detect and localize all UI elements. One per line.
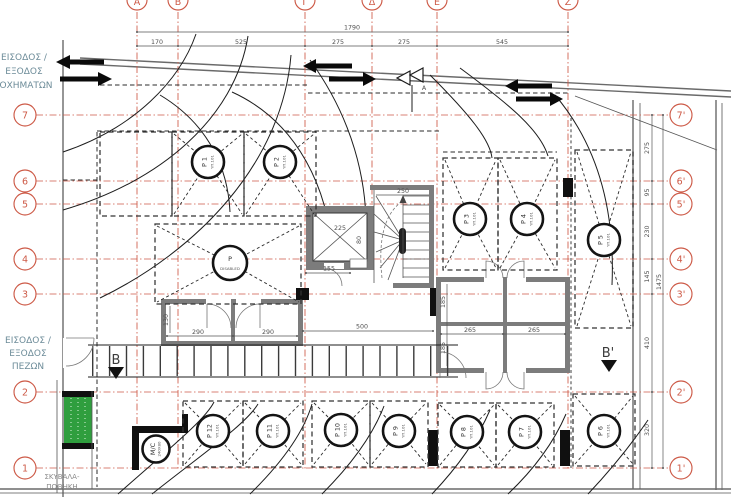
section-b-prime-label: B'	[602, 346, 615, 361]
spot-sub: ΥΠ.101	[401, 423, 406, 437]
grid-label: 6	[22, 177, 28, 188]
staircase: 250	[370, 185, 434, 288]
section-b-label: B	[112, 353, 121, 368]
grid-label: 3'	[677, 290, 686, 301]
spot-id: P 3	[463, 214, 471, 224]
storage-block-right: 265 265 185 185	[436, 261, 570, 389]
dim-seg: 410	[644, 337, 651, 349]
dim-seg: 275	[332, 39, 344, 46]
dim-total: 1475	[656, 274, 663, 290]
spot-sub: ΥΠ.101	[282, 154, 287, 168]
spot-sub: ΥΠ.101	[275, 423, 280, 437]
parking-spot-empty	[100, 132, 172, 216]
spot-id: P 6	[597, 426, 605, 436]
direction-arrows	[56, 55, 563, 106]
dim-seg: 230	[644, 225, 651, 237]
parking-spot: P 10ΥΠ.101	[312, 401, 370, 467]
parking-spot: P 7ΥΠ.101	[496, 403, 554, 467]
grid-bubbles-top: Α Β Γ Δ Ε Ζ	[127, 0, 578, 10]
top-dimensions: 1790 170 525 275 275 545	[136, 25, 569, 48]
spot-id: P 4	[520, 214, 528, 224]
spot-id: P 5	[597, 235, 605, 245]
grid-label: 4	[22, 255, 28, 266]
aisle-dim: 500	[356, 324, 368, 331]
parking-spot: P 4ΥΠ.101	[498, 158, 557, 270]
vehicle-entry-label: ΕΙΣΟΔΟΣ /	[1, 53, 48, 63]
grid-label: 6'	[677, 177, 686, 188]
store-height-dim: 130	[163, 314, 170, 326]
elevator-width-dim: 225	[334, 225, 346, 232]
grid-bubbles-right: 7' 6' 5' 4' 3' 2' 1'	[670, 104, 692, 479]
pedestrian-entry-label: ΕΞΟΔΟΣ	[9, 349, 47, 359]
grid-label: Ζ	[565, 0, 572, 8]
parking-spot: P 3ΥΠ.101	[443, 158, 498, 270]
disabled-spot-label: P	[228, 255, 232, 263]
grid-label: Ε	[434, 0, 440, 8]
spot-id: P 2	[273, 157, 281, 167]
store-rooms-left: 290 290 130 500	[161, 299, 434, 346]
spot-id: P 9	[392, 426, 400, 436]
waste-store-area: ΣΚΥΒΑΛΑ- ΠΟΘΗΚΗ	[45, 391, 94, 491]
waste-store-label: ΠΟΘΗΚΗ	[46, 483, 77, 491]
dim-seg: 320	[644, 424, 651, 436]
green-hatch-area	[64, 397, 92, 443]
parking-spot: P 8ΥΠ.101	[438, 403, 496, 467]
grid-label: Δ	[369, 0, 376, 8]
spot-sub: ΥΠ.101	[606, 423, 611, 437]
spot-id: P 12	[206, 424, 214, 438]
elevator: 225 80 155	[305, 206, 374, 286]
grid-label: Γ	[302, 0, 308, 8]
right-dimensions: 275 95 230 145 410 320 1475	[644, 114, 664, 469]
elevator-front-dim: 155	[323, 266, 335, 273]
parking-spot: P 12ΥΠ.101	[183, 401, 243, 467]
spot-sub: ΥΠ.101	[215, 423, 220, 437]
pedestrian-entry-label: ΕΙΣΟΔΟΣ /	[5, 336, 52, 346]
vehicle-entry-label: ΟΧΗΜΑΤΩΝ	[0, 81, 53, 91]
spot-id: P 1	[201, 157, 209, 167]
dim-total: 1790	[344, 25, 360, 32]
spot-sub: ΥΠ.101	[210, 154, 215, 168]
block-width-dim: 265	[464, 327, 476, 334]
store-width-dim: 290	[262, 329, 274, 336]
block-width-dim: 265	[528, 327, 540, 334]
parking-spot-moto: M/C240Χ80	[143, 436, 170, 463]
arrow-right-icon	[329, 72, 376, 86]
dim-seg: 145	[644, 270, 651, 282]
grid-label: 5	[22, 200, 28, 211]
parking-spot: P 5ΥΠ.101	[575, 150, 633, 328]
grid-label: 2'	[677, 388, 686, 399]
spot-sub: ΥΠ.101	[529, 211, 534, 225]
floor-plan-canvas: 7 6 5 4 3 2 1 7' 6' 5' 4' 3' 2' 1' Α Β Γ…	[0, 0, 731, 498]
dim-seg: 545	[496, 39, 508, 46]
arrow-right-icon	[60, 72, 112, 86]
parking-spot: P 1ΥΠ.101	[172, 132, 244, 216]
store-width-dim: 290	[192, 329, 204, 336]
grid-label: Β	[175, 0, 182, 8]
arrow-right-icon	[516, 92, 563, 106]
grid-label: 1'	[677, 464, 686, 475]
spot-id: P 10	[334, 423, 342, 437]
vehicle-entry-label: ΕΞΟΔΟΣ	[5, 67, 43, 77]
floor-plan-drawing: 7 6 5 4 3 2 1 7' 6' 5' 4' 3' 2' 1' Α Β Γ…	[0, 0, 731, 498]
spot-sub: ΥΠ.101	[606, 232, 611, 246]
spot-sub: ΥΠ.101	[472, 211, 477, 225]
grid-bubbles-left: 7 6 5 4 3 2 1	[14, 104, 36, 479]
elevator-door-dim: 80	[356, 236, 363, 244]
grid-label: 4'	[677, 255, 686, 266]
dim-seg: 95	[644, 188, 651, 196]
spot-id: P 11	[266, 424, 274, 438]
parking-spot-disabled: P DISABLED	[155, 224, 301, 304]
grid-label: 3	[22, 290, 28, 301]
parking-spot: P 11ΥΠ.101	[243, 401, 303, 467]
spot-id: P 8	[460, 427, 468, 437]
section-a-label: A	[422, 85, 427, 92]
grid-label: 7	[22, 111, 28, 122]
disabled-spot-label: DISABLED	[220, 266, 240, 271]
dim-seg: 275	[398, 39, 410, 46]
spot-sub: ΥΠ.101	[469, 424, 474, 438]
dim-seg: 525	[235, 39, 247, 46]
pedestrian-entry-label: ΠΕΖΩΝ	[12, 362, 44, 372]
grid-label: 2	[22, 388, 28, 399]
dim-seg: 170	[151, 39, 163, 46]
dim-seg: 275	[644, 142, 651, 154]
grid-label: Α	[134, 0, 141, 8]
stair-width-dim: 250	[397, 188, 409, 195]
spot-sub: ΥΠ.101	[527, 424, 532, 438]
grid-label: 1	[22, 464, 28, 475]
moto-spot-label: 240Χ80	[157, 441, 162, 457]
grid-label: 5'	[677, 200, 686, 211]
grid-label: 7'	[677, 111, 686, 122]
parking-spot: P 6ΥΠ.101	[573, 394, 635, 466]
parking-spot: P 9ΥΠ.101	[370, 401, 428, 467]
waste-store-label: ΣΚΥΒΑΛΑ-	[45, 473, 80, 481]
spot-id: P 7	[518, 427, 526, 437]
block-height-dim: 185	[440, 296, 447, 308]
spot-sub: ΥΠ.101	[343, 422, 348, 436]
